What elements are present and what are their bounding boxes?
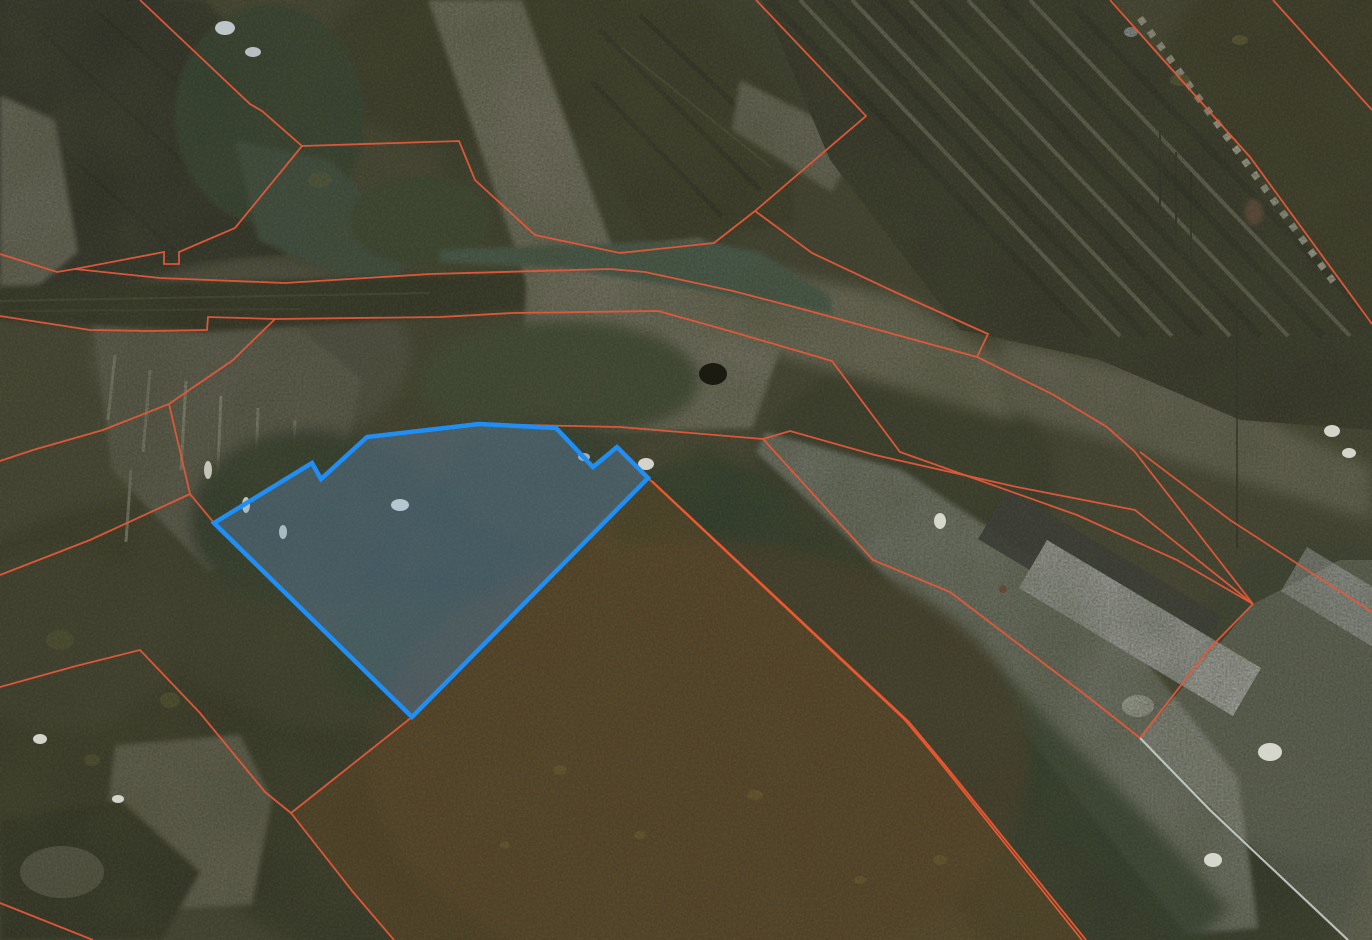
map-canvas[interactable] — [0, 0, 1372, 940]
car-white — [1324, 425, 1340, 437]
bright-blob — [215, 21, 235, 35]
car-white — [33, 734, 47, 744]
car-white — [112, 795, 124, 803]
car-dark — [699, 363, 727, 385]
bright-blob — [1204, 853, 1222, 867]
map-viewport[interactable] — [0, 0, 1372, 940]
bright-blob — [1258, 743, 1282, 761]
birch-crown — [204, 461, 212, 479]
car-white — [1342, 448, 1356, 458]
bright-blob — [245, 47, 261, 57]
car-white — [934, 513, 946, 529]
